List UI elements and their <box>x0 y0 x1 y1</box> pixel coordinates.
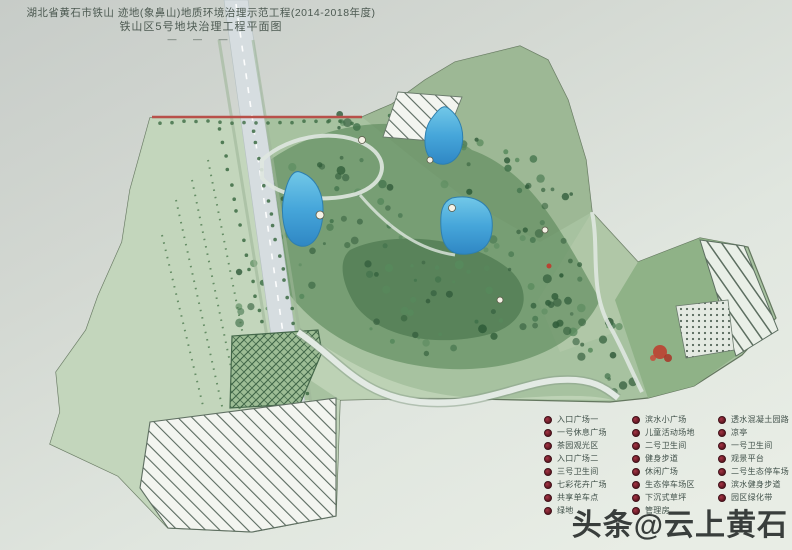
legend-item: 七彩花卉广场 <box>544 478 632 491</box>
tree-dot <box>387 184 394 191</box>
title-scale-marks: — — — <box>10 34 392 44</box>
legend-label: 一号卫生间 <box>731 440 773 451</box>
tree-dot <box>435 265 440 270</box>
tree-dot <box>426 299 431 304</box>
tree-dot <box>562 193 569 200</box>
legend-item: 生态停车场区 <box>632 478 718 491</box>
legend-item: 入口广场二 <box>544 452 632 465</box>
tree-dot <box>441 180 449 188</box>
legend-bullet-icon <box>544 468 552 476</box>
legend-item: 滨水小广场 <box>632 413 718 426</box>
tree-dot <box>401 315 408 322</box>
legend-item: 休闲广场 <box>632 465 718 478</box>
tree-dot <box>377 198 384 205</box>
boundary-tree-dot <box>206 119 210 123</box>
tree-dot <box>424 351 429 356</box>
tree-dot <box>551 188 555 192</box>
tree-dot <box>541 188 545 192</box>
tree-dot <box>491 309 496 314</box>
tree-dot <box>374 272 379 277</box>
tree-dot <box>577 277 582 282</box>
tree-dot <box>237 308 244 315</box>
tree-dot <box>504 157 510 163</box>
tree-dot <box>561 238 567 244</box>
tree-dot <box>299 294 304 299</box>
tree-dot <box>410 297 416 303</box>
legend-bullet-icon <box>718 442 726 450</box>
roadside-tree-dot <box>251 280 255 284</box>
legend-item: 二号生态停车场 <box>718 465 792 478</box>
legend-item: 一号卫生间 <box>718 439 792 452</box>
legend-label: 休闲广场 <box>645 466 678 477</box>
roadside-tree-dot <box>226 168 230 172</box>
tree-dot <box>378 180 386 188</box>
tree-dot <box>364 260 371 267</box>
title-line-2: 铁山区5号地块治理工程平面图 <box>10 20 392 34</box>
tree-dot <box>435 276 441 282</box>
tree-dot <box>466 270 470 274</box>
roadside-tree-dot <box>242 239 246 243</box>
tree-dot <box>556 320 563 327</box>
tree-dot <box>540 220 545 225</box>
tree-dot <box>526 183 532 189</box>
roadside-tree-dot <box>253 294 257 298</box>
tree-dot <box>359 158 363 162</box>
boundary-tree-dot <box>242 121 246 125</box>
legend-bullet-icon <box>544 507 552 515</box>
legend-bullet-icon <box>632 481 640 489</box>
tree-dot <box>564 297 572 305</box>
tree-dot <box>616 323 623 330</box>
tree-dot <box>357 219 363 225</box>
tree-dot <box>431 290 437 296</box>
tree-dot <box>288 163 296 171</box>
legend-bullet-icon <box>632 455 640 463</box>
tree-dot <box>414 279 417 282</box>
tree-dot <box>247 303 254 310</box>
roadside-tree-dot <box>234 209 238 213</box>
tree-dot <box>508 251 514 257</box>
roadside-tree-dot <box>262 184 266 188</box>
tree-dot <box>569 192 573 196</box>
tree-dot <box>236 269 242 275</box>
tree-dot <box>344 242 350 248</box>
roadside-tree-dot <box>218 127 222 131</box>
legend-bullet-icon <box>718 455 726 463</box>
tree-dot <box>373 318 380 325</box>
drawing-title: 湖北省黄石市铁山 迹地(象鼻山)地质环境治理示范工程(2014-2018年度) … <box>10 6 392 44</box>
tree-dot <box>438 332 442 336</box>
boundary-tree-dot <box>278 121 282 125</box>
legend-label: 茶园观光区 <box>557 440 599 451</box>
tree-dot <box>446 291 453 298</box>
tree-dot <box>308 282 315 289</box>
legend-label: 透水混凝土园路 <box>731 414 789 425</box>
legend-item: 观景平台 <box>718 452 792 465</box>
watermark-text: 头条@云上黄石 <box>572 500 788 544</box>
legend-bullet-icon <box>544 455 552 463</box>
tree-dot <box>536 174 544 182</box>
tree-dot <box>398 213 403 218</box>
tree-dot <box>553 298 562 307</box>
legend-item: 一号休息广场 <box>544 426 632 439</box>
tree-dot <box>517 188 522 193</box>
legend-bullet-icon <box>544 429 552 437</box>
tree-dot <box>570 312 574 316</box>
tree-dot <box>485 287 493 295</box>
title-line-1: 湖北省黄石市铁山 迹地(象鼻山)地质环境治理示范工程(2014-2018年度) <box>10 6 392 20</box>
legend-bullet-icon <box>632 416 640 424</box>
boundary-tree-dot <box>194 120 198 124</box>
tree-dot <box>578 318 586 326</box>
legend-label: 生态停车场区 <box>645 479 695 490</box>
boundary-tree-dot <box>218 120 222 124</box>
legend-bullet-icon <box>632 429 640 437</box>
tree-dot <box>383 243 388 248</box>
boundary-tree-dot <box>170 121 174 125</box>
legend-label: 儿童活动场地 <box>645 427 695 438</box>
boundary-tree-dot <box>290 121 294 125</box>
tree-dot <box>309 248 316 255</box>
legend-item: 滨水健身步道 <box>718 478 792 491</box>
legend-label: 一号休息广场 <box>557 427 607 438</box>
tree-dot <box>520 235 526 241</box>
roadside-tree-dot <box>282 267 286 271</box>
tree-dot <box>559 273 563 277</box>
legend-label: 健身步道 <box>645 453 678 464</box>
legend-item: 茶园观光区 <box>544 439 632 452</box>
tree-dot <box>353 123 361 131</box>
boundary-tree-dot <box>326 120 330 124</box>
tree-dot <box>422 261 426 265</box>
tree-dot <box>382 286 390 294</box>
tree-dot <box>478 324 487 333</box>
boundary-tree-dot <box>266 121 270 125</box>
legend-item: 透水混凝土园路 <box>718 413 792 426</box>
legend-bullet-icon <box>544 494 552 502</box>
roadside-tree-dot <box>232 197 236 201</box>
legend-bullet-icon <box>544 416 552 424</box>
tree-dot <box>520 323 527 330</box>
tree-dot <box>619 381 627 389</box>
legend-label: 滨水小广场 <box>645 414 687 425</box>
tree-dot <box>515 158 520 163</box>
pond-central <box>441 197 493 254</box>
legend-label: 入口广场二 <box>557 453 599 464</box>
tree-dot <box>605 373 611 379</box>
legend-label: 凉亭 <box>731 427 748 438</box>
tree-dot <box>407 309 414 316</box>
tree-dot <box>475 138 479 142</box>
tree-dot <box>610 352 617 359</box>
tree-dot <box>340 156 344 160</box>
tree-dot <box>466 189 472 195</box>
tree-dot <box>369 327 372 330</box>
roadside-tree-dot <box>290 307 294 311</box>
legend-item: 二号卫生间 <box>632 439 718 452</box>
site-plan-page: 湖北省黄石市铁山 迹地(象鼻山)地质环境治理示范工程(2014-2018年度) … <box>0 0 792 550</box>
legend-bullet-icon <box>718 481 726 489</box>
tree-dot <box>326 224 333 231</box>
boundary-tree-dot <box>158 121 162 125</box>
legend-bullet-icon <box>718 416 726 424</box>
tree-dot <box>452 280 455 283</box>
tree-dot <box>317 162 322 167</box>
roadside-tree-dot <box>267 199 271 203</box>
roadside-tree-dot <box>230 183 234 187</box>
legend-item: 凉亭 <box>718 426 792 439</box>
roadside-tree-dot <box>258 309 262 313</box>
tree-dot <box>498 318 503 323</box>
roadside-tree-dot <box>245 253 249 257</box>
legend-label: 三号卫生间 <box>557 466 599 477</box>
roadside-tree-dot <box>306 392 310 396</box>
tree-dot <box>455 260 464 269</box>
tree-dot <box>341 216 347 222</box>
tree-dot <box>422 339 429 346</box>
legend-label: 二号卫生间 <box>645 440 687 451</box>
tree-dot <box>337 126 340 129</box>
tree-dot <box>599 336 607 344</box>
legend-bullet-icon <box>632 442 640 450</box>
tree-dot <box>530 155 538 163</box>
legend-bullet-icon <box>718 429 726 437</box>
legend-item: 儿童活动场地 <box>632 426 718 439</box>
tree-dot <box>337 166 346 175</box>
legend-bullet-icon <box>632 468 640 476</box>
tree-dot <box>484 265 490 271</box>
legend-item: 三号卫生间 <box>544 465 632 478</box>
legend-bullet-icon <box>718 468 726 476</box>
roadside-tree-dot <box>260 320 264 324</box>
tree-dot <box>401 307 409 315</box>
legend-label: 七彩花卉广场 <box>557 479 607 490</box>
tree-dot <box>530 237 536 243</box>
tree-dot <box>523 227 528 232</box>
roadside-tree-dot <box>254 141 258 145</box>
boundary-tree-dot <box>350 122 354 126</box>
roadside-tree-dot <box>224 154 228 158</box>
tree-dot <box>390 339 395 344</box>
tree-dot <box>568 259 573 264</box>
tree-dot <box>385 264 393 272</box>
boundary-tree-dot <box>182 119 186 123</box>
roadside-tree-dot <box>285 296 289 300</box>
tree-dot <box>410 264 414 268</box>
legend-label: 入口广场一 <box>557 414 599 425</box>
roadside-tree-dot <box>247 268 251 272</box>
tree-dot <box>577 262 582 267</box>
tree-dot <box>323 242 326 245</box>
tree-dot <box>528 283 535 290</box>
boundary-tree-dot <box>338 119 342 123</box>
tree-dot <box>342 174 349 181</box>
tree-dot <box>580 343 584 347</box>
roadside-tree-dot <box>278 254 282 258</box>
tree-dot <box>577 304 586 313</box>
tree-dot <box>532 316 538 322</box>
tree-dot <box>417 336 420 339</box>
roadside-tree-dot <box>291 322 295 326</box>
tree-dot <box>475 320 479 324</box>
tree-dot <box>516 230 521 235</box>
roadside-tree-dot <box>282 278 286 282</box>
tree-dot <box>508 268 511 271</box>
legend-label: 观景平台 <box>731 453 764 464</box>
tree-dot <box>366 271 373 278</box>
tree-dot <box>494 243 500 249</box>
legend-item: 入口广场一 <box>544 413 632 426</box>
tree-dot <box>504 165 511 172</box>
tree-dot <box>577 353 585 361</box>
legend-bullet-icon <box>544 481 552 489</box>
tree-dot <box>299 263 302 266</box>
tree-dot <box>531 303 537 309</box>
tree-dot <box>532 323 538 329</box>
tree-dot <box>490 333 497 340</box>
roadside-tree-dot <box>273 238 277 242</box>
roadside-tree-dot <box>221 141 225 145</box>
legend-bullet-icon <box>544 442 552 450</box>
roadside-tree-dot <box>238 223 242 227</box>
tree-dot <box>572 338 579 345</box>
tree-dot <box>385 205 391 211</box>
tree-dot <box>542 308 548 314</box>
tree-dot <box>399 235 403 239</box>
legend-item: 健身步道 <box>632 452 718 465</box>
roadside-tree-dot <box>270 212 274 216</box>
tree-dot <box>542 203 549 210</box>
legend-label: 二号生态停车场 <box>731 466 789 477</box>
tree-dot <box>467 162 471 166</box>
hatch-zone-east-dots <box>676 300 734 358</box>
roadside-tree-dot <box>252 129 256 133</box>
tree-dot <box>503 149 508 154</box>
tree-dot <box>351 237 359 245</box>
boundary-tree-dot <box>230 121 234 125</box>
legend-label: 滨水健身步道 <box>731 479 781 490</box>
boundary-tree-dot <box>302 119 306 123</box>
tree-dot <box>334 186 339 191</box>
boundary-tree-dot <box>254 121 258 125</box>
tree-dot <box>563 327 571 335</box>
tree-dot <box>330 219 334 223</box>
boundary-tree-dot <box>314 120 318 124</box>
tree-dot <box>543 274 552 283</box>
tree-dot <box>548 301 555 308</box>
roadside-tree-dot <box>271 224 275 228</box>
tree-dot <box>588 348 593 353</box>
tree-dot <box>450 345 457 352</box>
